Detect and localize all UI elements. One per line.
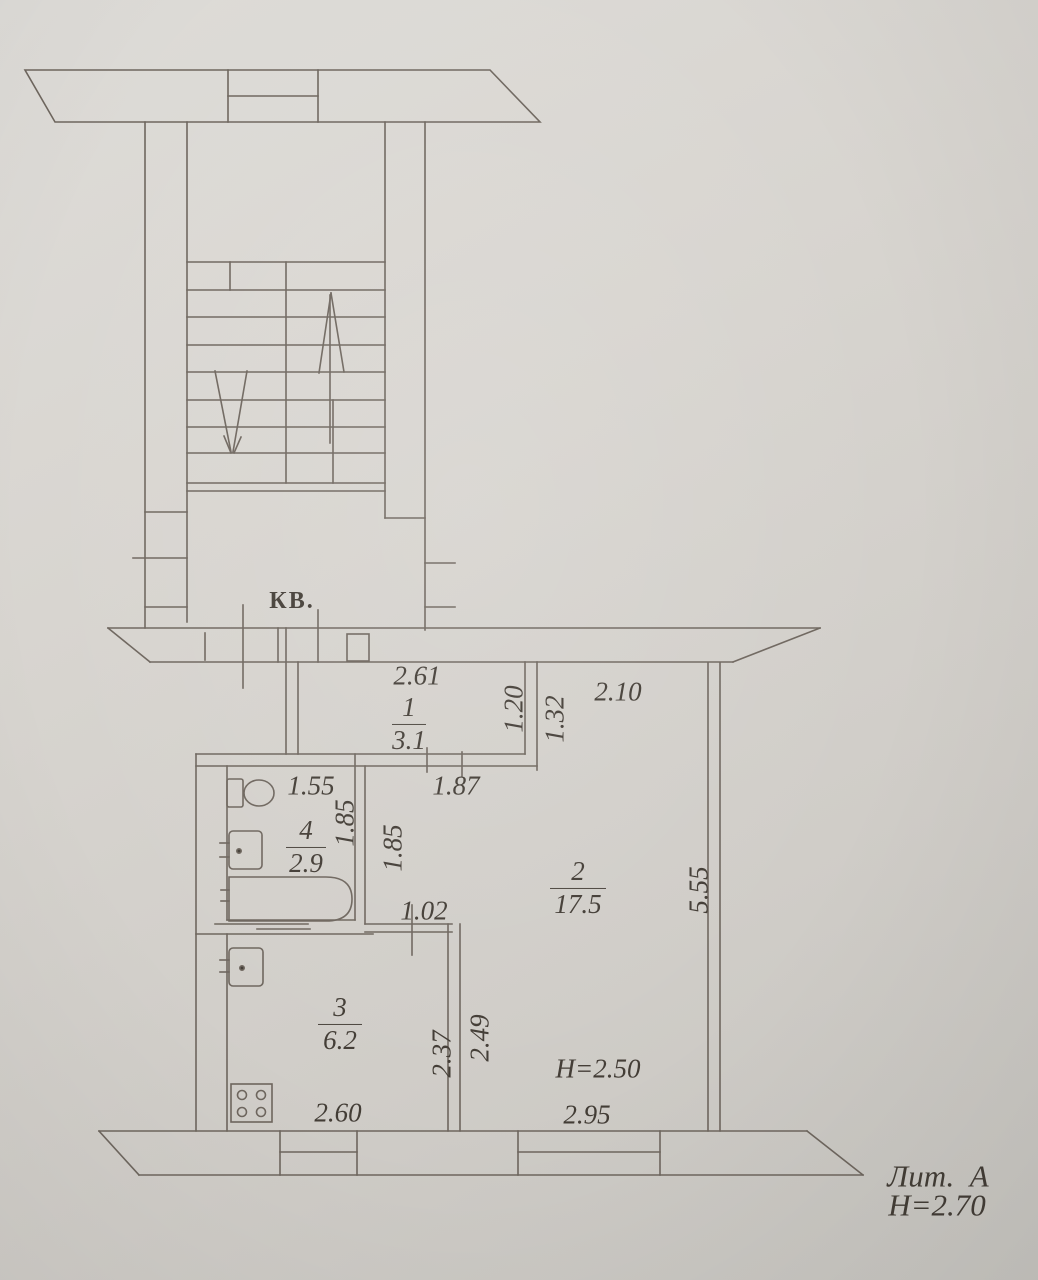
room3-number: 3	[333, 994, 347, 1022]
stairs-down-arrow-icon	[215, 371, 247, 453]
room2-label: 2 17.5	[550, 858, 606, 918]
dim-living-side-height: 5.55	[686, 866, 713, 913]
living-room-window	[518, 1131, 660, 1175]
room2-number: 2	[571, 858, 585, 886]
room3-area: 6.2	[323, 1027, 357, 1055]
dim-hall-height: 1.20	[501, 685, 528, 732]
hallway-walls	[196, 628, 537, 776]
room4-label: 4 2.9	[286, 817, 326, 877]
room2-area: 17.5	[554, 891, 601, 919]
entrance-door	[347, 634, 369, 661]
bathtub-icon	[221, 877, 352, 921]
room1-label: 1 3.1	[392, 694, 426, 754]
dim-living-upper-height: 1.32	[542, 695, 569, 742]
dim-bath-top-width: 1.55	[287, 773, 334, 800]
floor-plan-sheet: КВ. 2.61 1.20 1.32 2.10 1.55 1.87 1.85 1…	[0, 0, 1038, 1280]
stairwell-top-wall	[25, 70, 540, 122]
apartment-top-wall	[108, 605, 820, 688]
room1-area: 3.1	[392, 727, 426, 755]
dim-corridor-top-width: 1.87	[432, 773, 479, 800]
dim-kitchen-side-depth: 2.37	[429, 1030, 456, 1077]
stove-icon	[231, 1084, 272, 1122]
bottom-wall	[99, 1131, 863, 1175]
dim-hall-top-width: 2.61	[393, 663, 440, 690]
apartment-marker-label: КВ.	[269, 589, 314, 613]
dim-living-top-width: 2.10	[594, 679, 641, 706]
room4-number: 4	[299, 817, 313, 845]
room3-label: 3 6.2	[318, 994, 362, 1054]
room1-number: 1	[402, 694, 416, 722]
note-building-height: Н=2.70	[888, 1190, 986, 1221]
dim-kitchen-bottom-width: 2.60	[314, 1100, 361, 1127]
note-living-ceiling-height: Н=2.50	[556, 1056, 641, 1083]
kitchen-window	[280, 1131, 357, 1175]
toilet-icon	[227, 779, 274, 807]
dim-living-nook-depth: 2.49	[467, 1014, 494, 1061]
dim-living-bottom-width: 2.95	[563, 1102, 610, 1129]
dim-corridor-bottom-width: 1.02	[400, 898, 447, 925]
stairs-up-arrow-icon	[319, 293, 344, 443]
floor-plan-drawing	[0, 0, 1038, 1280]
stairwell-walls	[133, 122, 455, 630]
dim-corridor-side-depth: 1.85	[380, 824, 407, 871]
room4-area: 2.9	[289, 850, 323, 878]
dim-bath-side-depth: 1.85	[332, 799, 359, 846]
